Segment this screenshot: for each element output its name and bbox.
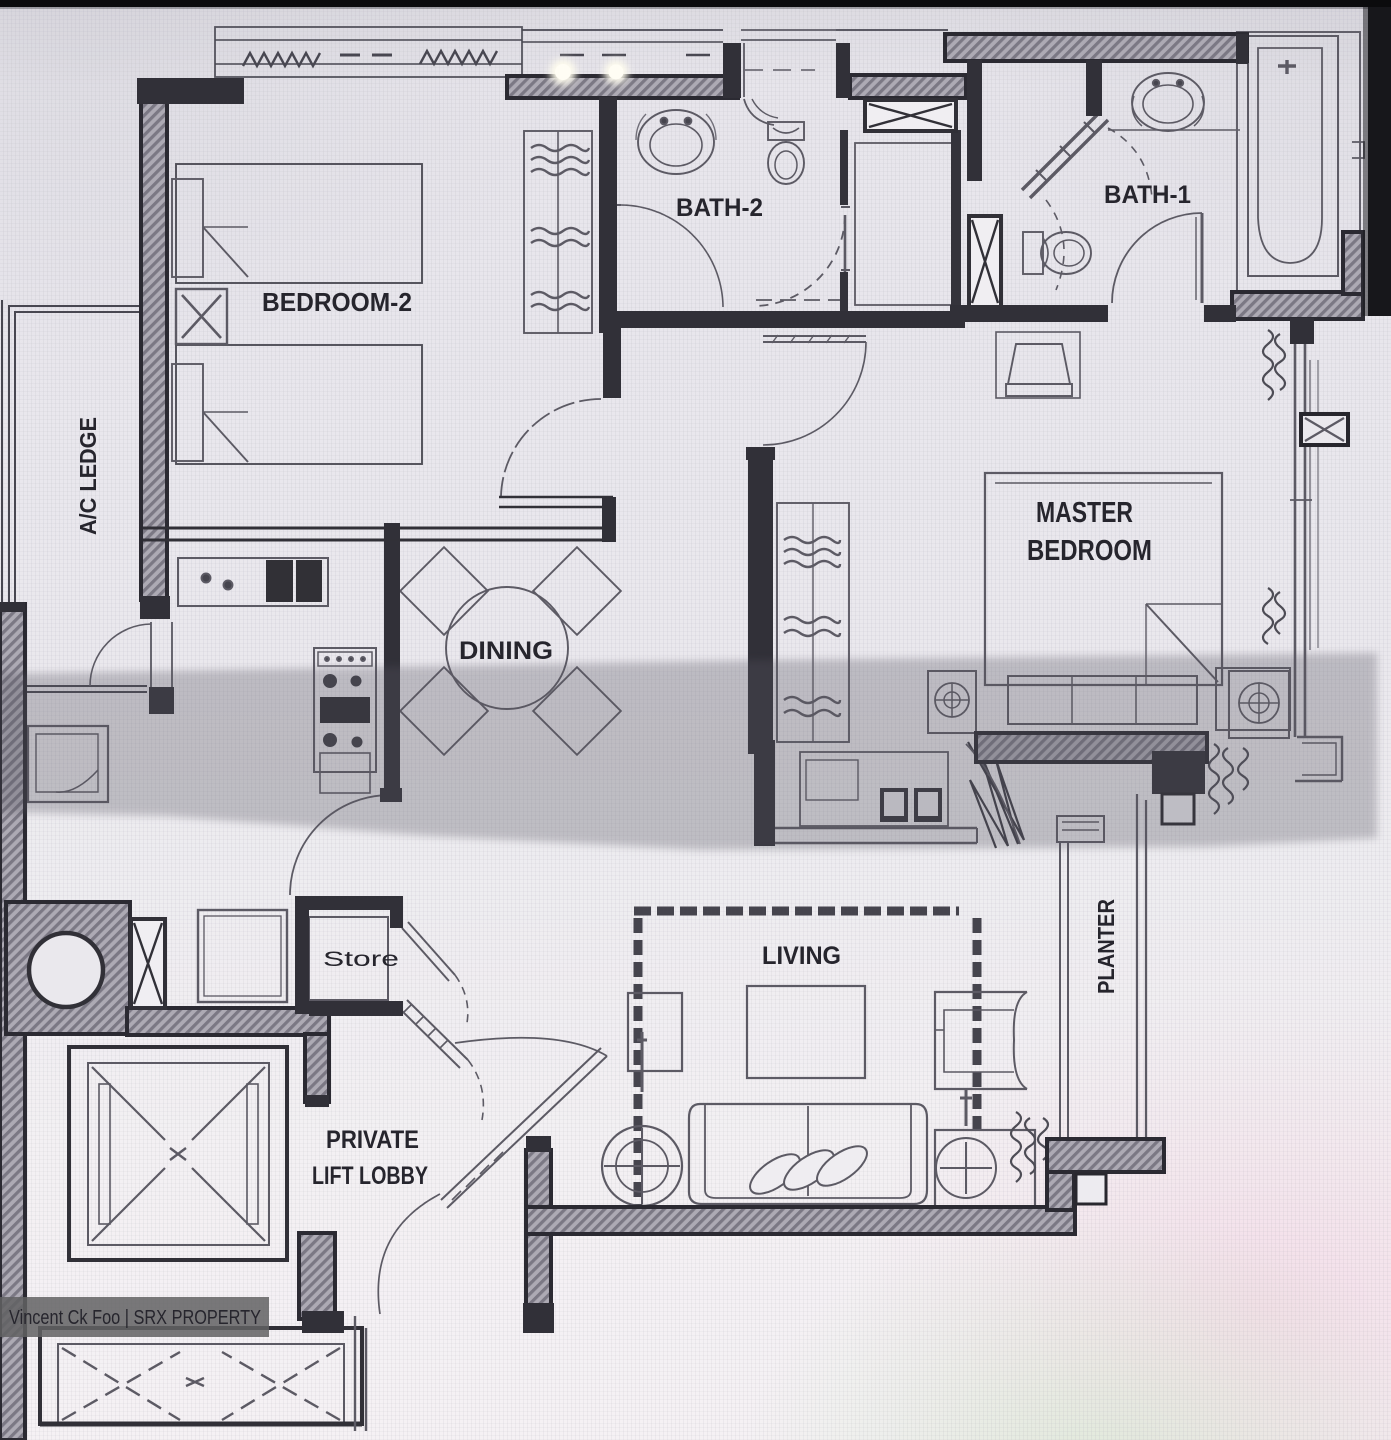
svg-text:BEDROOM: BEDROOM [1027,535,1152,567]
svg-text:BEDROOM-2: BEDROOM-2 [262,288,412,317]
svg-text:BATH-1: BATH-1 [1104,181,1191,209]
svg-text:LIVING: LIVING [762,942,841,970]
svg-text:PRIVATE: PRIVATE [326,1126,419,1154]
svg-text:MASTER: MASTER [1036,497,1133,529]
svg-text:DINING: DINING [459,637,553,665]
svg-text:Vincent Ck Foo | SRX PROPERTY: Vincent Ck Foo | SRX PROPERTY [9,1307,261,1329]
svg-text:LIFT LOBBY: LIFT LOBBY [312,1162,428,1190]
svg-text:Store: Store [323,948,399,971]
svg-text:PLANTER: PLANTER [1093,899,1119,994]
svg-text:A/C LEDGE: A/C LEDGE [75,417,101,535]
svg-text:BATH-2: BATH-2 [676,194,763,222]
